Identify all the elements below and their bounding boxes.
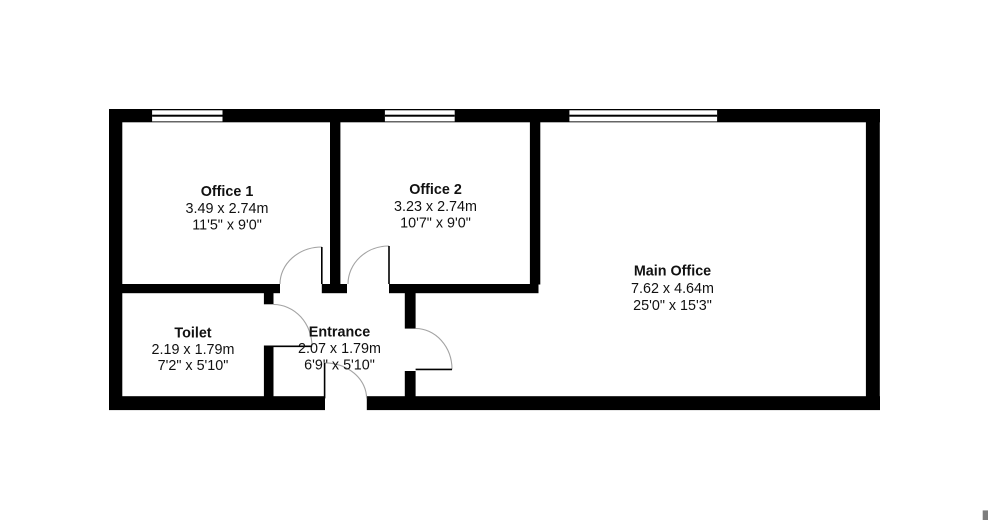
svg-text:Office 2: Office 2: [409, 182, 462, 198]
svg-text:6'9" x 5'10": 6'9" x 5'10": [304, 358, 375, 374]
svg-text:2.19 x 1.79m: 2.19 x 1.79m: [152, 342, 235, 358]
svg-text:25'0" x 15'3": 25'0" x 15'3": [633, 298, 712, 314]
svg-text:2.07 x 1.79m: 2.07 x 1.79m: [298, 341, 381, 357]
svg-text:3.23 x 2.74m: 3.23 x 2.74m: [394, 199, 477, 215]
svg-text:Toilet: Toilet: [174, 326, 211, 342]
svg-text:7'2" x 5'10": 7'2" x 5'10": [158, 358, 229, 374]
svg-text:7.62 x 4.64m: 7.62 x 4.64m: [631, 281, 714, 297]
svg-text:Office 1: Office 1: [201, 184, 254, 200]
svg-text:Main Office: Main Office: [634, 264, 711, 280]
svg-text:Entrance: Entrance: [309, 324, 370, 340]
svg-text:3.49 x 2.74m: 3.49 x 2.74m: [186, 201, 269, 217]
svg-text:10'7" x 9'0": 10'7" x 9'0": [400, 216, 471, 232]
svg-text:11'5" x 9'0": 11'5" x 9'0": [192, 218, 262, 234]
